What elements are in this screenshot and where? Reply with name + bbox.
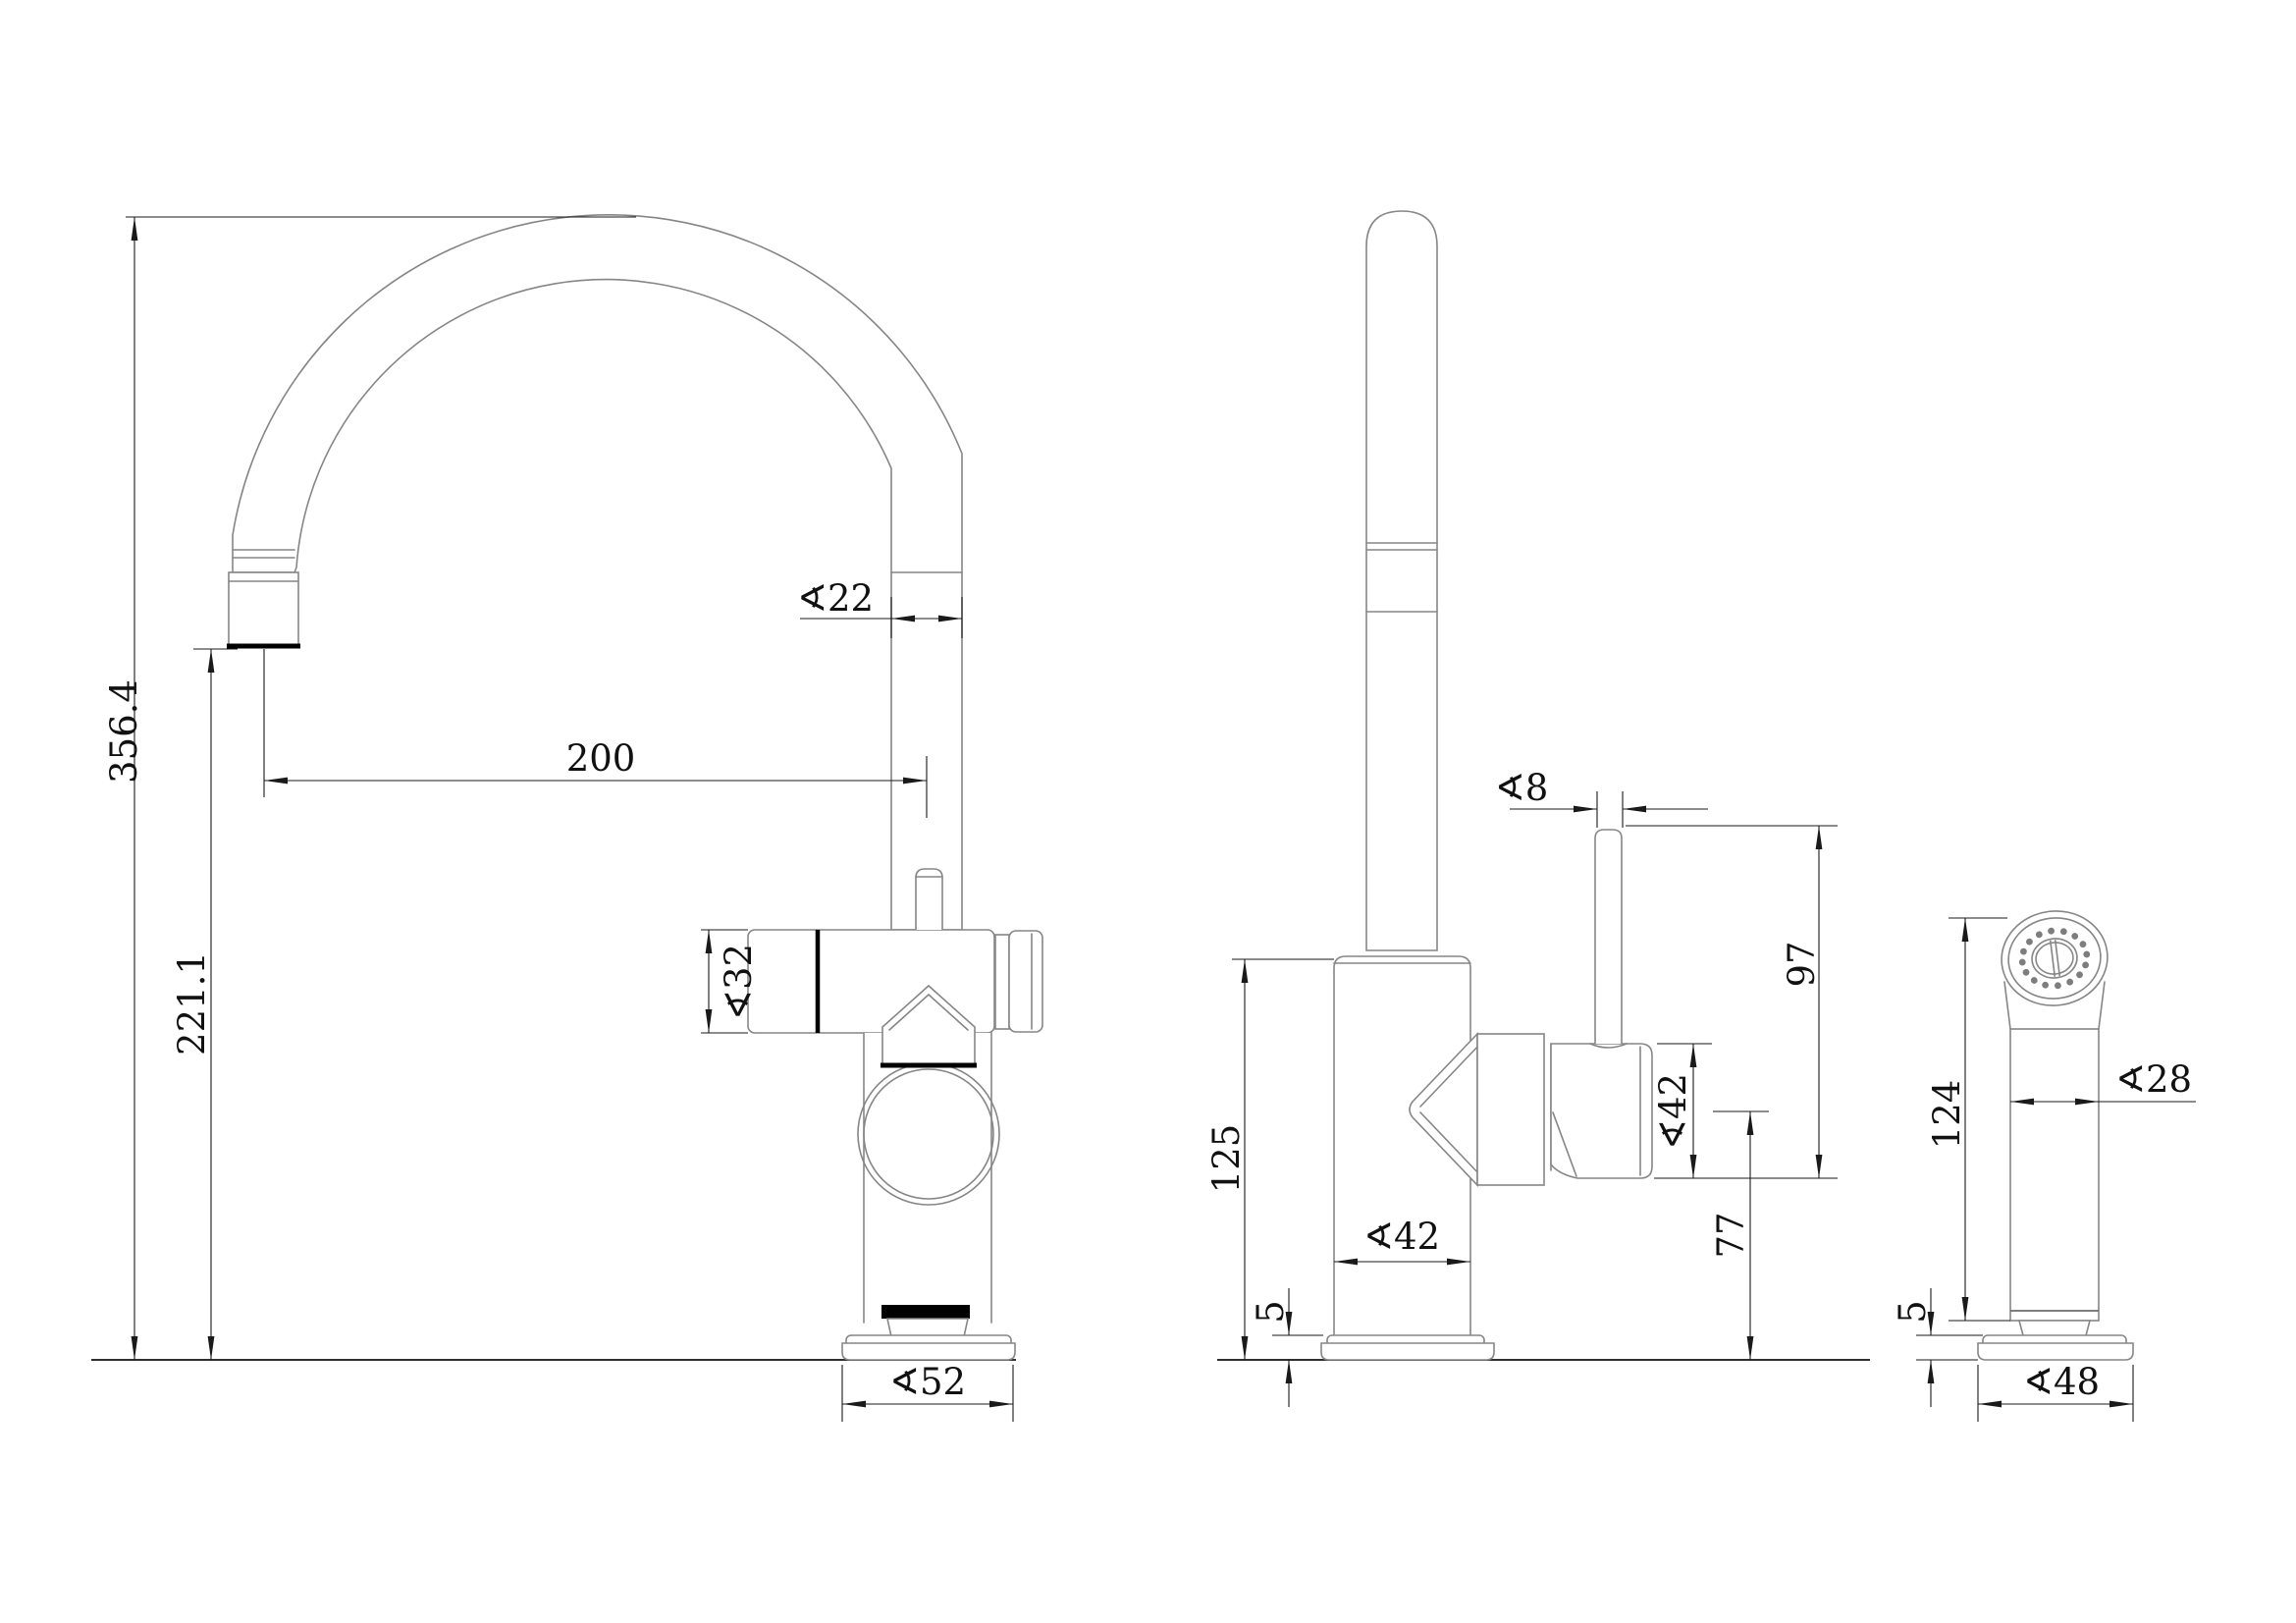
handle-hub bbox=[1477, 1034, 1544, 1185]
base-flange-side bbox=[1321, 1335, 1494, 1360]
label-lever-height: 97 bbox=[1781, 941, 1823, 987]
label-body-diameter-side: ∢42 bbox=[1363, 1216, 1440, 1258]
label-body-height: 125 bbox=[1205, 1124, 1248, 1194]
label-sprayer-base-diameter: ∢48 bbox=[2023, 1361, 2100, 1403]
dim-spout-reach: 200 bbox=[264, 649, 927, 818]
sprayer-flange bbox=[1978, 1335, 2133, 1360]
dim-valve-body-diameter: ∢32 bbox=[701, 930, 760, 1033]
dim-handle-axis-height: 77 bbox=[1710, 1111, 1769, 1360]
drawing-sheet: 356.4 221.1 200 ∢22 ∢32 bbox=[0, 0, 2296, 1623]
dim-handle-diameter: ∢42 bbox=[1652, 1044, 1712, 1178]
label-total-height: 356.4 bbox=[103, 679, 145, 784]
dim-sprayer-height: 124 bbox=[1926, 918, 2010, 1321]
label-handle-diameter: ∢42 bbox=[1652, 1073, 1694, 1150]
spout-tube-side bbox=[1366, 211, 1437, 950]
lever-side bbox=[1590, 830, 1627, 1048]
o-ring-band bbox=[881, 1305, 970, 1319]
front-view: 356.4 221.1 200 ∢22 ∢32 bbox=[91, 215, 1042, 1422]
dim-body-height: 125 bbox=[1205, 959, 1334, 1360]
label-outlet-height: 221.1 bbox=[171, 951, 213, 1055]
label-handle-axis-height: 77 bbox=[1710, 1212, 1752, 1258]
label-spout-reach: 200 bbox=[566, 737, 636, 780]
sprayer-body bbox=[2004, 982, 2105, 1321]
label-valve-body-diameter: ∢32 bbox=[718, 944, 760, 1020]
dim-base-diameter-front: ∢52 bbox=[842, 1361, 1013, 1422]
dim-outlet-height: 221.1 bbox=[171, 649, 238, 1360]
sprayer-view: 124 ∢28 5 ∢48 bbox=[1892, 905, 2196, 1422]
label-spout-diameter: ∢22 bbox=[797, 577, 874, 620]
label-base-plate-sprayer: 5 bbox=[1892, 1300, 1934, 1324]
lever-front bbox=[916, 869, 942, 930]
dim-base-plate-side: 5 bbox=[1250, 1288, 1323, 1407]
label-base-plate-side: 5 bbox=[1250, 1300, 1292, 1324]
gooseneck-spout bbox=[233, 215, 962, 930]
dim-lever-diameter: ∢8 bbox=[1495, 767, 1708, 828]
label-sprayer-height: 124 bbox=[1926, 1080, 1968, 1150]
sprayer-head bbox=[1997, 905, 2113, 1011]
aerator bbox=[227, 572, 300, 646]
dim-sprayer-base-diameter: ∢48 bbox=[1978, 1361, 2133, 1422]
label-lever-diameter: ∢8 bbox=[1495, 767, 1549, 809]
base-flange-front bbox=[842, 1335, 1015, 1360]
dim-base-plate-sprayer: 5 bbox=[1892, 1288, 1983, 1407]
label-sprayer-head-diameter: ∢28 bbox=[2115, 1058, 2192, 1101]
handle-side bbox=[1551, 1044, 1652, 1178]
side-view: ∢8 97 ∢42 77 ∢42 125 bbox=[1205, 211, 1870, 1407]
label-base-diameter-front: ∢52 bbox=[889, 1361, 966, 1403]
faucet-technical-drawing: 356.4 221.1 200 ∢22 ∢32 bbox=[0, 0, 2296, 1623]
faucet-column bbox=[864, 1033, 991, 1323]
